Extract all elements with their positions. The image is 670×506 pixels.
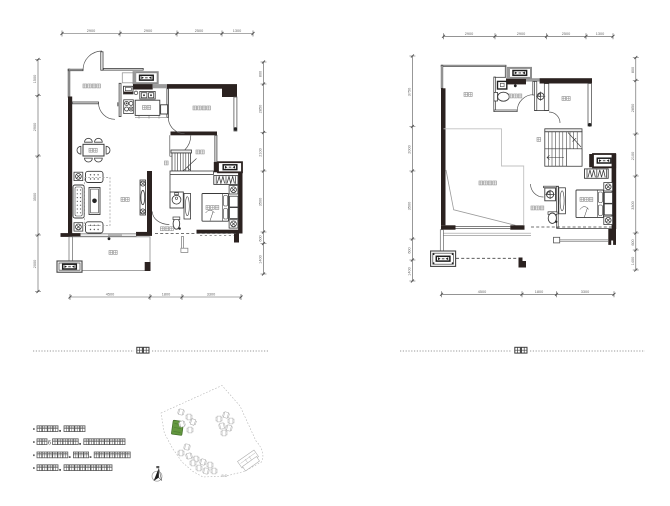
svg-text:4500: 4500 (106, 293, 114, 297)
svg-text:600: 600 (631, 239, 635, 245)
svg-text:4500: 4500 (478, 290, 486, 294)
svg-text:2900: 2900 (517, 32, 525, 36)
svg-text:3300: 3300 (207, 293, 215, 297)
svg-text:600: 600 (259, 235, 263, 241)
svg-text:2000: 2000 (407, 145, 411, 153)
svg-text:3300: 3300 (631, 201, 635, 209)
svg-text:1300: 1300 (596, 32, 604, 36)
svg-text:3750: 3750 (407, 88, 411, 96)
svg-text:1400: 1400 (631, 257, 635, 265)
svg-text:3500: 3500 (33, 193, 37, 201)
svg-text:2900: 2900 (87, 29, 95, 33)
svg-text:1800: 1800 (162, 293, 170, 297)
svg-text:2850: 2850 (631, 104, 635, 112)
svg-text:3500: 3500 (259, 198, 263, 206)
svg-text:2500: 2500 (195, 29, 203, 33)
svg-text:2100: 2100 (631, 152, 635, 160)
svg-text:600: 600 (407, 247, 411, 253)
svg-text:2900: 2900 (465, 32, 473, 36)
svg-text:1800: 1800 (535, 290, 543, 294)
svg-text:2850: 2850 (259, 105, 263, 113)
svg-text:1400: 1400 (259, 255, 263, 263)
svg-text:2500: 2500 (562, 32, 570, 36)
svg-text:2000: 2000 (33, 260, 37, 268)
svg-text:2900: 2900 (33, 123, 37, 131)
svg-text:1500: 1500 (33, 75, 37, 83)
svg-text:1300: 1300 (233, 29, 241, 33)
svg-text:1400: 1400 (407, 267, 411, 275)
svg-text:6: 6 (48, 440, 52, 446)
svg-text:3300: 3300 (581, 290, 589, 294)
svg-text:800: 800 (631, 67, 635, 73)
svg-text:800: 800 (259, 71, 263, 77)
svg-text:2900: 2900 (144, 29, 152, 33)
svg-text:2100: 2100 (259, 148, 263, 156)
svg-text:B·D: B·D (222, 474, 228, 478)
svg-text:3500: 3500 (407, 202, 411, 210)
